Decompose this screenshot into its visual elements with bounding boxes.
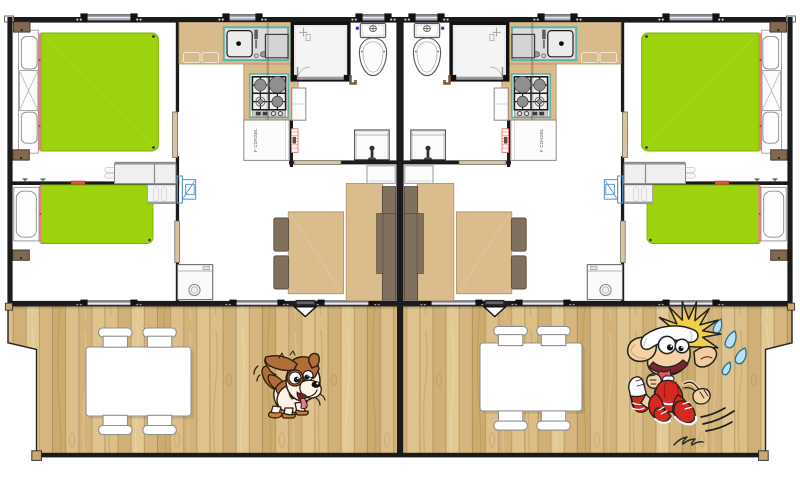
svg-text:F CONGEL: F CONGEL bbox=[253, 128, 258, 152]
svg-text:F CONGEL: F CONGEL bbox=[539, 128, 544, 152]
